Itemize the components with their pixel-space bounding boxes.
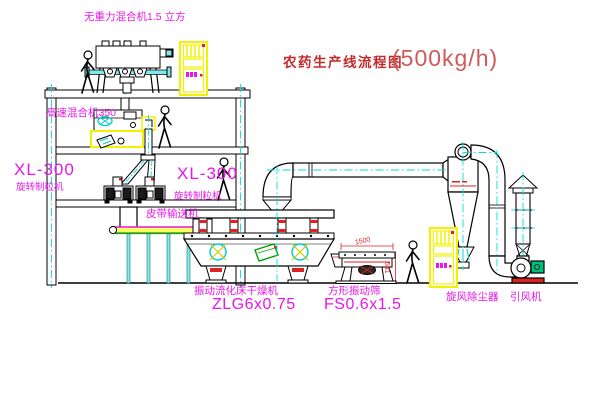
gravity-mixer-drawing [85,41,173,93]
induced-draft-fan-drawing [511,256,544,283]
granulator-left-model-label: XL-300 [14,161,75,178]
exhaust-stack-drawing [509,175,537,257]
belt-conveyor-label: 皮带输送机 [146,209,199,220]
granulator-right-name-label: 旋转制粒机 [174,192,222,202]
page-title-capacity: (500kg/h) [392,47,498,70]
flowsheet-page: 无重力混合机1.5 立方 农药生产线流程图 (500kg/h) 高速混合机350… [0,0,600,403]
screen-model-label: FS0.6x1.5 [324,297,401,313]
cyclone-label: 旋风除尘器 [446,292,499,303]
granulator-left-name-label: 旋转制粒机 [16,183,64,193]
fan-label: 引风机 [510,292,542,303]
screen-name-label: 方形振动筛 [328,286,381,297]
control-cabinet-bottom [430,228,457,287]
control-cabinet-top [180,42,207,95]
high-speed-mixer-label: 高速混合机350 [46,108,116,119]
person-icon [407,241,420,283]
dimension-screen-height: 541 [383,262,390,274]
discharge-pipe [120,207,137,228]
granulator-right-model-label: XL-300 [177,165,238,182]
granulator-right-drawing [136,177,165,203]
dryer-model-label: ZLG6x0.75 [212,297,296,313]
person-icon [159,106,172,148]
page-title: 农药生产线流程图 [283,56,403,70]
dryer-name-label: 振动流化床干燥机 [194,286,278,297]
exhaust-duct-drawing [263,157,452,200]
gravity-mixer-label: 无重力混合机1.5 立方 [84,12,186,23]
fluid-bed-dryer-drawing [184,200,346,283]
